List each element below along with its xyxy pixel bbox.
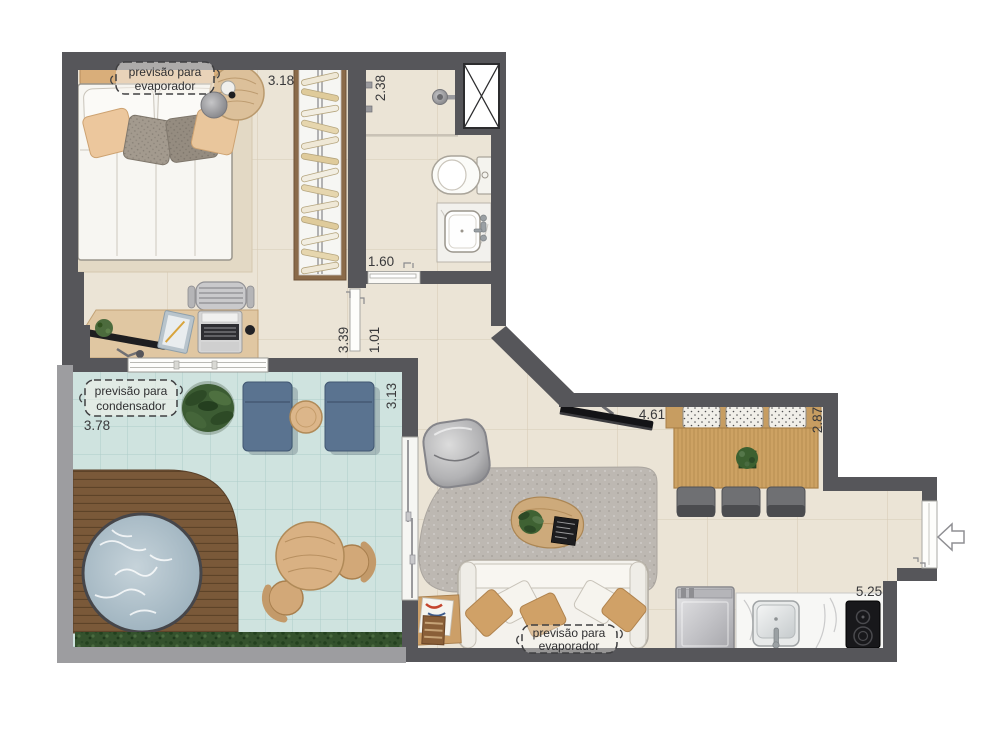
refrigerator — [676, 587, 734, 651]
dim-balcony-width: 3.78 — [84, 418, 110, 433]
laptop — [198, 311, 242, 353]
table-lamp-shade — [201, 92, 227, 118]
bench-cushions — [683, 406, 806, 428]
balcony-side-table — [290, 401, 322, 433]
wooden-tray — [422, 616, 445, 645]
hedge — [75, 632, 404, 649]
office-chair-arm-right — [247, 286, 254, 308]
bedroom-ac-label: previsão para evaporador — [111, 62, 220, 94]
entry-arrow-icon — [938, 524, 964, 550]
wall-living-west-top — [402, 362, 418, 438]
dim-kitchen-width: 5.25 — [856, 584, 882, 599]
towel-hook-2 — [365, 106, 372, 112]
duct-shaft — [464, 64, 499, 128]
bedroom-ac-line2: evaporador — [135, 79, 196, 93]
living-side-table — [415, 595, 462, 646]
office-chair-arm-left — [188, 286, 195, 308]
sofa-back — [466, 564, 640, 588]
hot-tub — [83, 514, 201, 632]
desk — [81, 310, 258, 358]
lounge-chair-right — [325, 382, 374, 451]
balcony-wall-west — [57, 365, 73, 663]
wall-dining-north — [559, 393, 838, 407]
living-ac-line2: evaporador — [539, 639, 600, 653]
balcony-ac-line1: previsão para — [95, 384, 168, 398]
towel-hook-1 — [365, 82, 372, 88]
bedroom-ac-line1: previsão para — [129, 65, 202, 79]
wall-bedroom-east — [348, 52, 366, 288]
dim-balcony-depth: 3.13 — [384, 383, 399, 409]
balcony-fern-plant — [181, 381, 235, 435]
balcony-ac-label: previsão para condensador — [80, 380, 183, 416]
dining-chairs — [677, 487, 805, 517]
kitchen-group — [676, 587, 884, 653]
office-chair — [188, 282, 254, 310]
dining-group — [666, 405, 821, 517]
wardrobe — [294, 64, 346, 280]
coffee-table-book — [551, 516, 578, 545]
desk-mouse — [245, 325, 255, 335]
kitchen-sink — [753, 601, 799, 648]
dim-bath-door: 1.60 — [368, 254, 394, 269]
dim-hall-width: 1.01 — [367, 327, 382, 353]
balcony-sliding-door — [402, 437, 418, 600]
wall-kitchen-north — [823, 477, 937, 491]
office-chair-back — [196, 282, 246, 310]
balcony-ac-line2: condensador — [96, 399, 165, 413]
dim-living-width: 4.61 — [639, 407, 665, 422]
dim-bedroom-width: 3.18 — [268, 73, 294, 88]
wall-dining-east — [823, 393, 838, 491]
wall-living-south — [404, 648, 897, 662]
dim-dining-depth: 2.87 — [810, 407, 825, 433]
armchair — [421, 417, 492, 490]
lounge-chair-left — [243, 382, 292, 451]
floor-plan-svg: previsão para evaporador previsão para c… — [0, 0, 1000, 730]
cooktop — [846, 601, 880, 648]
bistro-table — [276, 522, 344, 590]
shower-divider — [366, 134, 458, 137]
wall-below-entry — [897, 568, 937, 581]
living-ac-line1: previsão para — [533, 626, 606, 640]
dining-table-plant — [736, 447, 758, 469]
dim-bathroom-length: 2.38 — [373, 75, 388, 101]
dim-bedroom-length: 3.39 — [336, 327, 351, 353]
balcony-wall-south — [57, 647, 406, 663]
floor-plan-canvas: previsão para evaporador previsão para c… — [0, 0, 1000, 730]
desk-plant — [95, 319, 113, 337]
toilet — [432, 156, 493, 194]
wall-entry-stub — [922, 491, 937, 502]
bedroom-window — [128, 358, 268, 372]
living-ac-label: previsão para evaporador — [517, 625, 623, 653]
bathroom-vanity — [437, 203, 491, 262]
